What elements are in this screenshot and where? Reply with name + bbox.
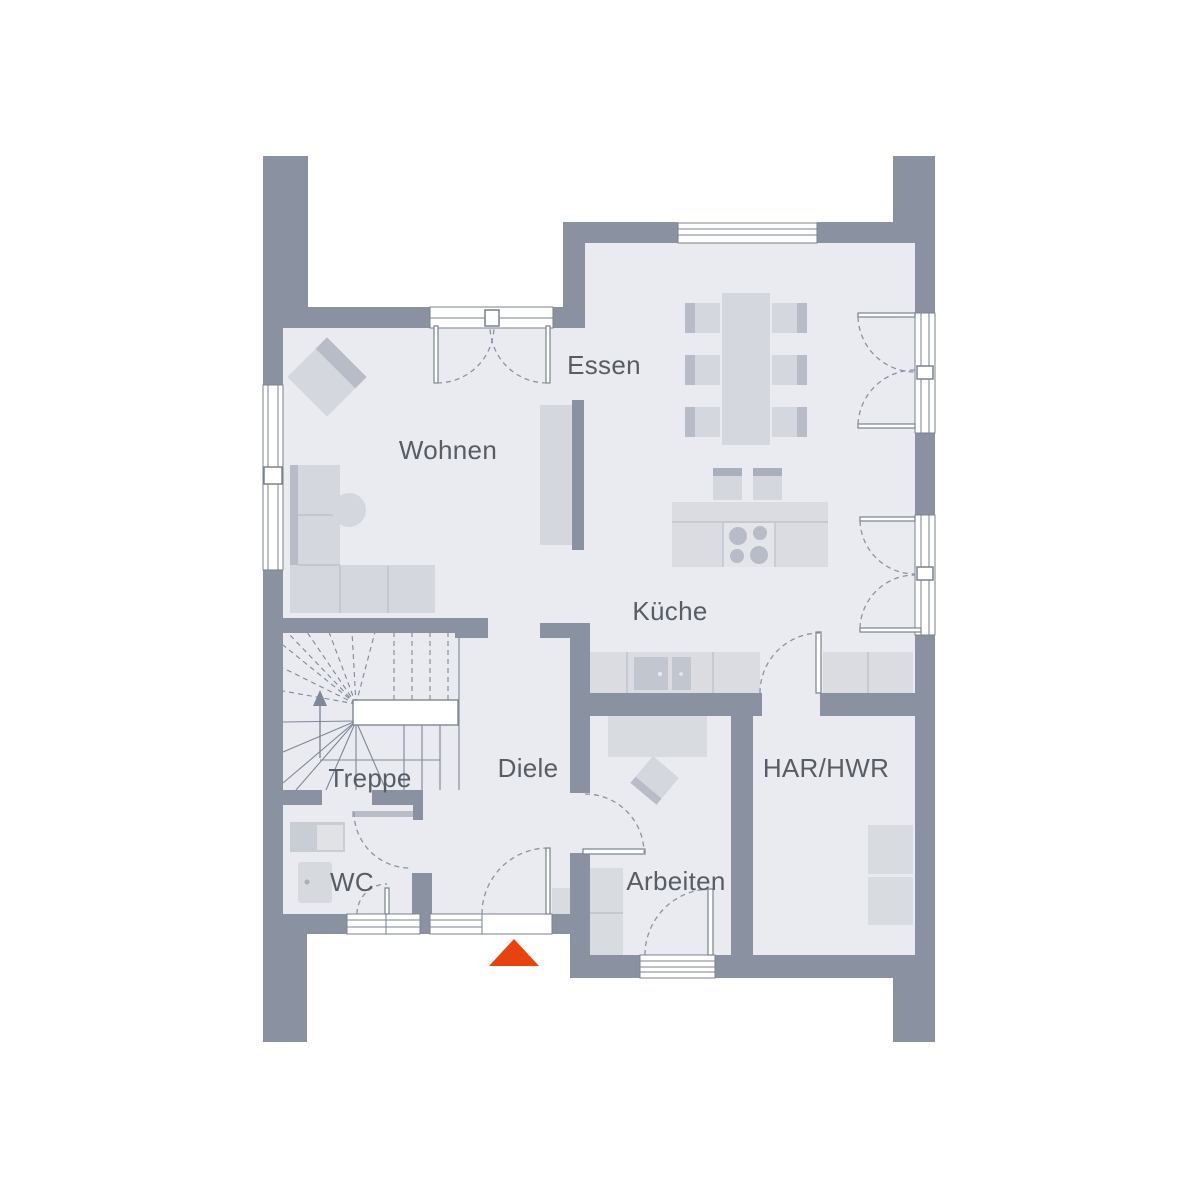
wall-segment bbox=[915, 635, 935, 955]
chair-back bbox=[797, 407, 807, 437]
kitchen-sink bbox=[634, 657, 668, 690]
door-leaf bbox=[816, 632, 821, 693]
stool-back bbox=[713, 468, 742, 476]
label-wc: WC bbox=[330, 867, 374, 897]
wall-segment bbox=[915, 243, 935, 313]
label-treppe: Treppe bbox=[328, 763, 411, 793]
door-leaf bbox=[858, 313, 915, 317]
label-diele: Diele bbox=[498, 753, 559, 783]
toilet bbox=[298, 862, 332, 903]
wall-segment bbox=[413, 790, 423, 820]
wall-segment bbox=[915, 433, 935, 515]
dining-chairs-right bbox=[772, 303, 807, 437]
chair-back bbox=[685, 303, 695, 333]
window-leaf bbox=[385, 888, 389, 914]
chair-back bbox=[685, 355, 695, 385]
wall-segment bbox=[820, 693, 915, 716]
furniture-essen bbox=[685, 293, 807, 445]
knob bbox=[679, 672, 683, 676]
stool-back bbox=[753, 468, 782, 476]
chair-back bbox=[685, 407, 695, 437]
wall-segment bbox=[455, 618, 488, 638]
wall-arbeiten-har-divider bbox=[731, 695, 753, 955]
washbasin bbox=[317, 825, 343, 850]
entry-cabinet bbox=[552, 888, 572, 914]
window-west bbox=[263, 385, 283, 570]
door-leaf bbox=[860, 628, 921, 632]
wall-segment bbox=[563, 222, 678, 243]
door-leaf bbox=[860, 517, 915, 521]
washer bbox=[868, 825, 913, 874]
wall-segment bbox=[715, 955, 935, 978]
wall-segment bbox=[263, 914, 347, 934]
dryer bbox=[868, 877, 913, 925]
label-essen: Essen bbox=[567, 350, 641, 380]
sofa-horizontal bbox=[290, 565, 435, 613]
wall-pillar-top-right bbox=[893, 156, 935, 243]
sink-drain bbox=[658, 672, 662, 676]
wardrobe bbox=[352, 811, 413, 817]
window-north bbox=[678, 223, 817, 243]
wall-tv-partition bbox=[572, 400, 584, 550]
wall-pillar-bottom-left bbox=[263, 932, 307, 1042]
label-arbeiten: Arbeiten bbox=[626, 866, 725, 896]
label-kueche: Küche bbox=[632, 596, 707, 626]
door-leaf bbox=[434, 326, 438, 383]
entrance-triangle bbox=[489, 939, 539, 966]
wall-segment bbox=[263, 570, 283, 934]
wall-pillar-top-left bbox=[263, 156, 308, 328]
wall-wc-east bbox=[412, 873, 432, 914]
wall-segment bbox=[570, 853, 590, 915]
tv-sideboard bbox=[540, 405, 572, 545]
door-leaf bbox=[546, 326, 550, 383]
wall-segment bbox=[263, 307, 430, 328]
label-wohnen: Wohnen bbox=[399, 435, 497, 465]
wall-segment bbox=[817, 222, 893, 243]
door-leaf bbox=[583, 849, 645, 854]
stair-landing bbox=[353, 700, 458, 725]
wall-segment bbox=[590, 955, 640, 978]
cooktop-panel bbox=[723, 523, 775, 567]
door-leaf bbox=[546, 848, 550, 914]
toilet-detail bbox=[305, 880, 310, 885]
door-leaf bbox=[858, 424, 915, 428]
dining-table bbox=[722, 293, 770, 445]
wall-segment bbox=[570, 914, 590, 978]
dining-chairs-left bbox=[685, 303, 720, 437]
door-leaf bbox=[708, 889, 713, 955]
floor-plan: Wohnen Essen Küche Treppe Diele WC Arbei… bbox=[0, 0, 1200, 1200]
wall-segment bbox=[263, 328, 283, 385]
coffee-table bbox=[332, 493, 366, 527]
chair-back bbox=[797, 303, 807, 333]
floor-plan-canvas: Wohnen Essen Küche Treppe Diele WC Arbei… bbox=[0, 0, 1200, 1200]
label-har-hwr: HAR/HWR bbox=[763, 753, 889, 783]
wall-segment bbox=[283, 790, 322, 805]
chair-back bbox=[797, 355, 807, 385]
wall-segment bbox=[283, 618, 460, 633]
wall-segment bbox=[420, 914, 430, 934]
